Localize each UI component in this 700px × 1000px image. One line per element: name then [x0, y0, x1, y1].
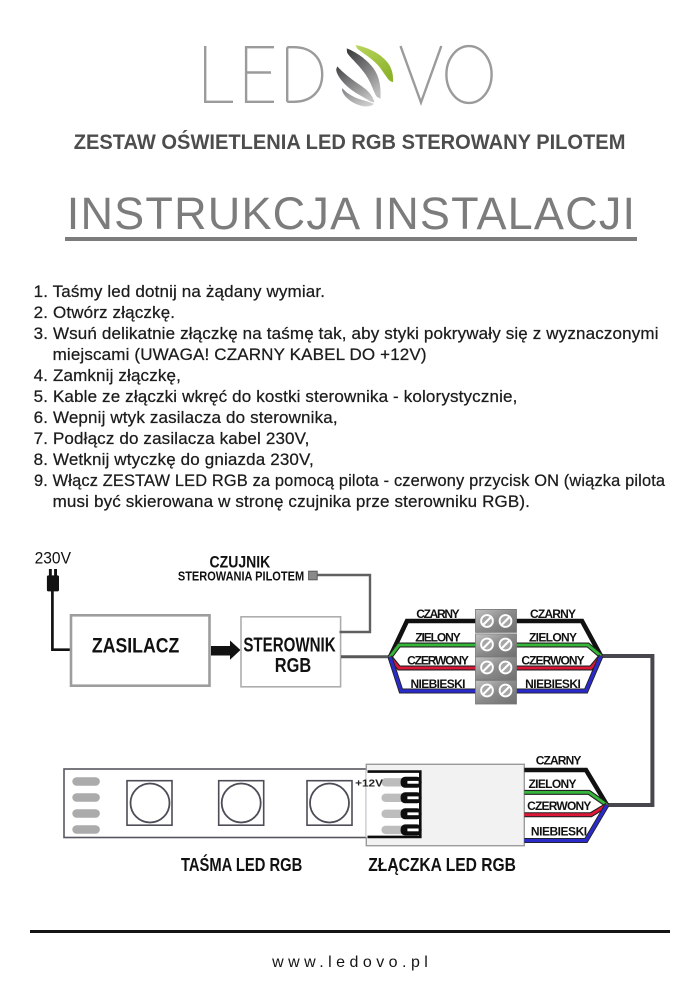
svg-text:CZERWONY: CZERWONY	[407, 654, 469, 668]
svg-text:+12V: +12V	[355, 778, 383, 790]
svg-text:ZIELONY: ZIELONY	[529, 631, 577, 645]
svg-text:STEROWANIA PILOTEM: STEROWANIA PILOTEM	[178, 569, 304, 584]
svg-text:NIEBIESKI: NIEBIESKI	[531, 825, 587, 839]
svg-text:ZŁĄCZKA LED RGB: ZŁĄCZKA LED RGB	[368, 855, 516, 875]
svg-text:230V: 230V	[35, 549, 72, 568]
svg-text:STEROWNIK: STEROWNIK	[243, 635, 336, 657]
svg-text:RGB: RGB	[275, 655, 311, 677]
svg-text:CZARNY: CZARNY	[536, 753, 582, 767]
svg-text:ZIELONY: ZIELONY	[415, 631, 461, 645]
svg-text:CZARNY: CZARNY	[530, 607, 576, 621]
svg-text:CZARNY: CZARNY	[416, 607, 459, 621]
svg-text:TAŚMA LED RGB: TAŚMA LED RGB	[181, 854, 302, 875]
svg-text:NIEBIESKI: NIEBIESKI	[525, 677, 581, 691]
svg-text:ZIELONY: ZIELONY	[529, 777, 577, 791]
svg-text:CZERWONY: CZERWONY	[521, 654, 584, 668]
svg-text:ZASILACZ: ZASILACZ	[92, 635, 180, 658]
svg-text:CZERWONY: CZERWONY	[527, 799, 591, 813]
svg-text:NIEBIESKI: NIEBIESKI	[411, 677, 466, 691]
